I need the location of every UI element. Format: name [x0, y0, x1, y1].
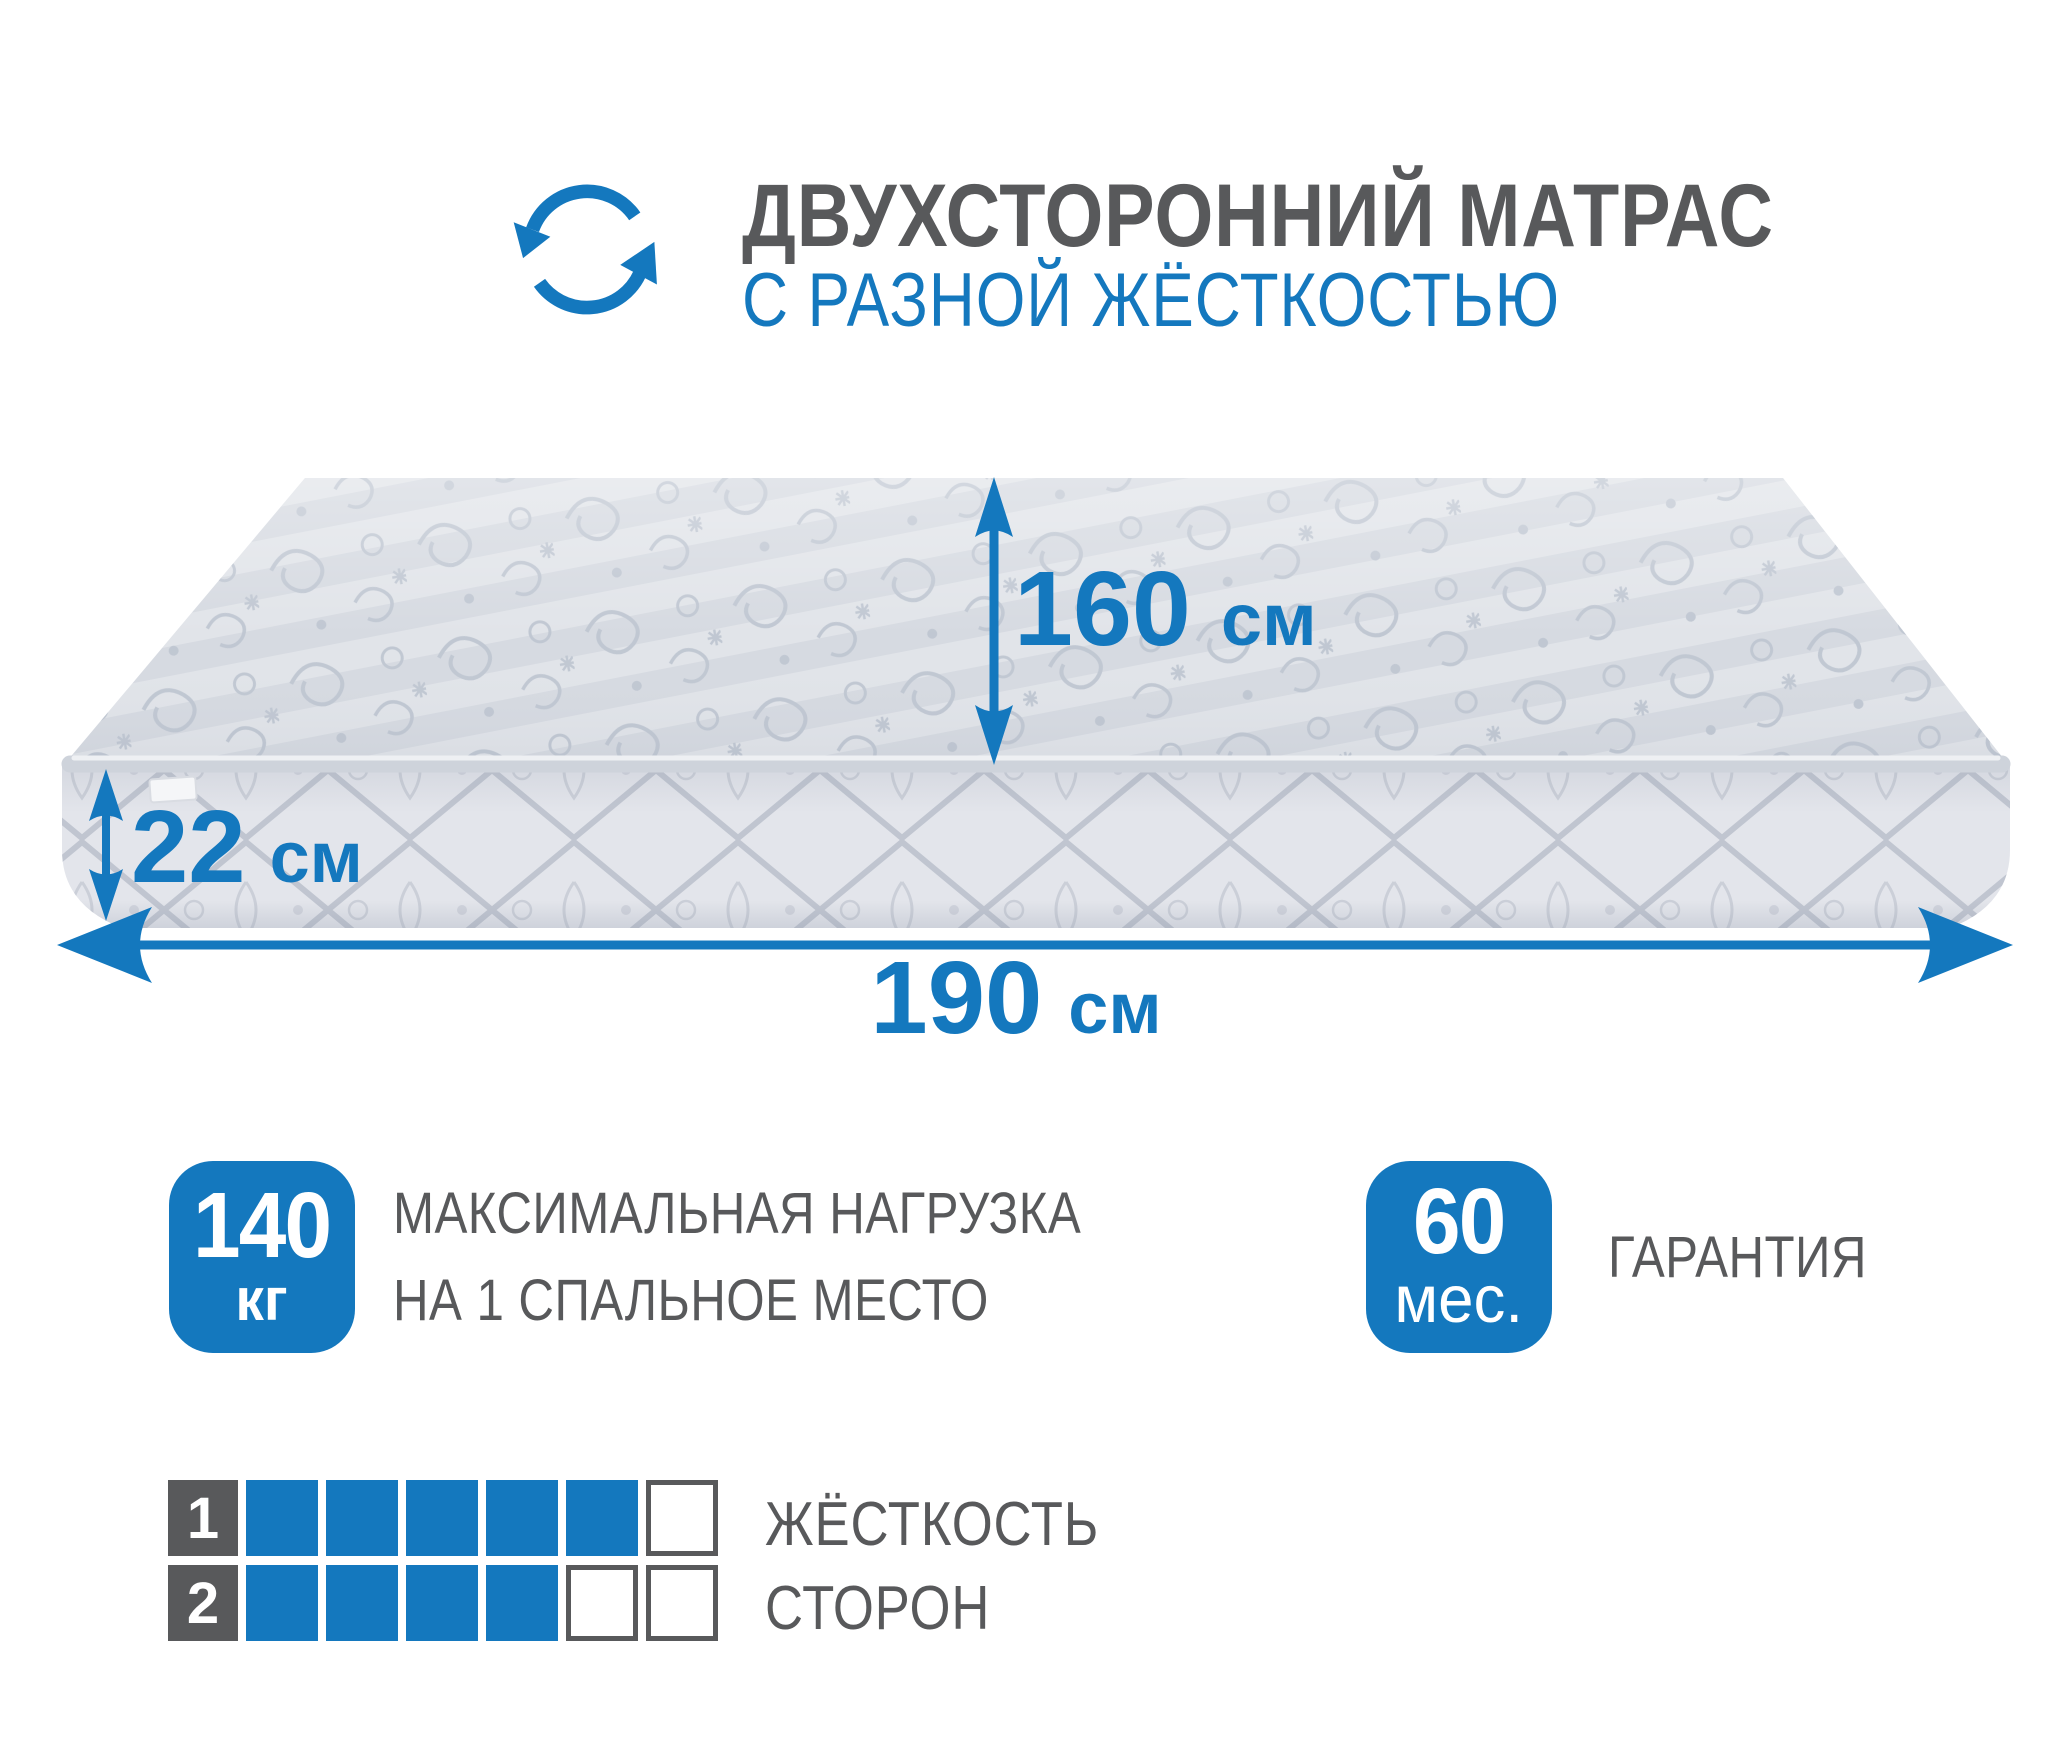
- warranty-feature: 60 мес. ГАРАНТИЯ: [1366, 1161, 1913, 1353]
- max-load-feature: 140 кг МАКСИМАЛЬНАЯ НАГРУЗКА НА 1 СПАЛЬН…: [169, 1161, 1203, 1353]
- page-title: ДВУХСТОРОННИЙ МАТРАС: [742, 164, 1774, 267]
- width-value: 160: [1014, 556, 1191, 662]
- firmness-cell-empty: [646, 1480, 718, 1556]
- firmness-label-line2: СТОРОН: [765, 1573, 990, 1644]
- firmness-cell-filled: [326, 1480, 398, 1556]
- firmness-cell-filled: [246, 1480, 318, 1556]
- length-value: 190: [870, 946, 1042, 1049]
- max-load-label: МАКСИМАЛЬНАЯ НАГРУЗКА НА 1 СПАЛЬНОЕ МЕСТ…: [393, 1170, 1081, 1344]
- firmness-cell-filled: [406, 1565, 478, 1641]
- warranty-value: 60: [1413, 1179, 1504, 1265]
- rotate-icon: [506, 175, 668, 325]
- firmness-scale: 1 2: [168, 1480, 718, 1650]
- firmness-cell-filled: [326, 1565, 398, 1641]
- warranty-unit: мес.: [1395, 1265, 1524, 1335]
- firmness-label-line1: ЖЁСТКОСТЬ: [765, 1489, 1099, 1560]
- height-value: 22: [131, 795, 246, 898]
- height-unit: см: [270, 822, 363, 894]
- max-load-value: 140: [193, 1183, 330, 1269]
- firmness-cell-empty: [646, 1565, 718, 1641]
- width-arrow: [975, 477, 1013, 765]
- height-dimension-label: 22 см: [131, 795, 363, 898]
- firmness-side-index: 2: [168, 1565, 238, 1641]
- firmness-cell-filled: [406, 1480, 478, 1556]
- firmness-cell-filled: [246, 1565, 318, 1641]
- firmness-cell-filled: [486, 1565, 558, 1641]
- mattress-piping: [70, 758, 2002, 764]
- page-subtitle: С РАЗНОЙ ЖЁСТКОСТЬЮ: [742, 257, 1560, 344]
- width-dimension-label: 160 см: [1014, 556, 1317, 662]
- warranty-label: ГАРАНТИЯ: [1608, 1214, 1867, 1301]
- firmness-row-side-1: 1: [168, 1480, 718, 1556]
- firmness-cell-filled: [486, 1480, 558, 1556]
- max-load-badge: 140 кг: [169, 1161, 355, 1353]
- max-load-label-line2: НА 1 СПАЛЬНОЕ МЕСТО: [393, 1257, 1081, 1344]
- product-infographic: ДВУХСТОРОННИЙ МАТРАС С РАЗНОЙ ЖЁСТКОСТЬЮ: [0, 0, 2048, 1757]
- firmness-row-side-2: 2: [168, 1565, 718, 1641]
- length-unit: см: [1068, 973, 1161, 1045]
- height-arrow: [89, 769, 123, 921]
- firmness-cell-empty: [566, 1565, 638, 1641]
- max-load-label-line1: МАКСИМАЛЬНАЯ НАГРУЗКА: [393, 1170, 1081, 1257]
- width-unit: см: [1221, 583, 1317, 657]
- warranty-badge: 60 мес.: [1366, 1161, 1552, 1353]
- firmness-side-index: 1: [168, 1480, 238, 1556]
- length-dimension-label: 190 см: [870, 946, 1161, 1049]
- firmness-cell-filled: [566, 1480, 638, 1556]
- max-load-unit: кг: [236, 1268, 288, 1331]
